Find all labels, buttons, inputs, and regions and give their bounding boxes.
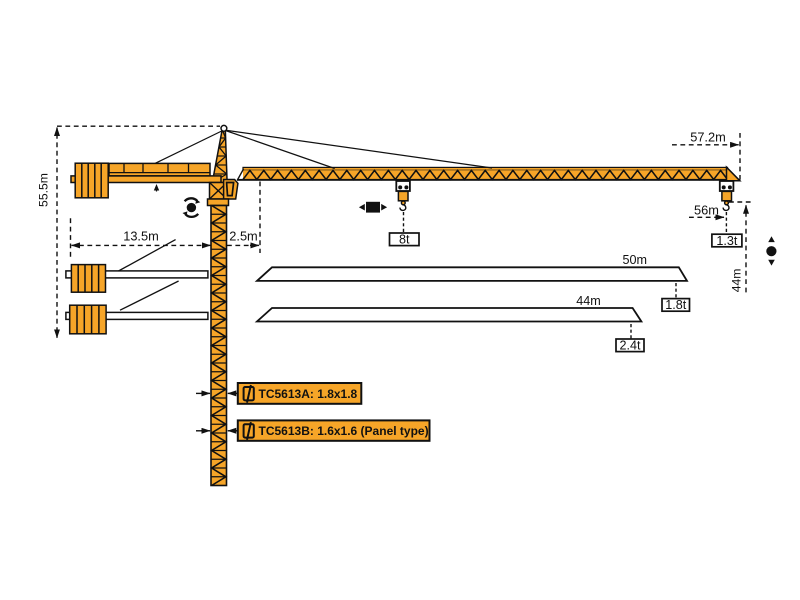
svg-text:1.3t: 1.3t — [716, 234, 738, 248]
svg-text:1.8t: 1.8t — [665, 298, 687, 312]
svg-text:TC5613B: 1.6x1.6 (Panel type): TC5613B: 1.6x1.6 (Panel type) — [259, 424, 429, 438]
svg-text:55.5m: 55.5m — [37, 173, 51, 207]
svg-text:50m: 50m — [623, 253, 648, 267]
svg-text:56m: 56m — [694, 203, 719, 218]
svg-text:TC5613A: 1.8x1.8: TC5613A: 1.8x1.8 — [259, 387, 358, 401]
svg-text:44m: 44m — [576, 294, 601, 308]
svg-text:44m: 44m — [730, 269, 744, 293]
svg-text:2.5m: 2.5m — [229, 229, 257, 244]
svg-text:2.4t: 2.4t — [619, 339, 641, 353]
svg-text:13.5m: 13.5m — [123, 229, 159, 244]
svg-text:8t: 8t — [399, 233, 410, 247]
svg-text:57.2m: 57.2m — [690, 130, 726, 145]
